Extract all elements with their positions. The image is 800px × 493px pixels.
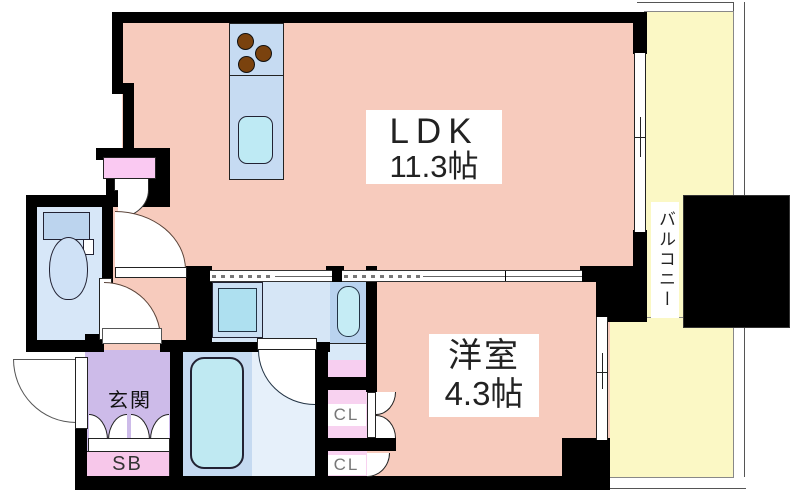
entrance-door-arc	[13, 359, 76, 423]
ldk-name: LDK	[366, 113, 502, 150]
closet-upper-door-panel	[367, 392, 376, 438]
western-room-name: 洋室	[429, 338, 539, 375]
western-room-window	[596, 317, 608, 440]
shoe-box-label: SB	[112, 453, 143, 476]
sliding-door	[423, 270, 582, 282]
ldk-label: LDK 11.3帖	[366, 110, 502, 184]
wall	[112, 12, 646, 23]
wall	[633, 230, 647, 272]
western-room-size: 4.3帖	[429, 375, 539, 412]
closet-upper-label: CL	[327, 404, 366, 426]
wall	[75, 476, 610, 490]
sliding-door-track	[275, 276, 332, 277]
stove-burner	[237, 33, 254, 50]
wall	[315, 350, 328, 477]
closet-upper: CL	[326, 390, 367, 438]
window-midline	[602, 353, 603, 389]
sliding-door-track	[423, 276, 582, 277]
wall	[123, 83, 134, 150]
stove-burner	[238, 56, 255, 73]
ldk-hall-door-leaf	[115, 267, 187, 278]
window-midline	[640, 117, 641, 157]
floor-plan: SB CL CL	[0, 0, 800, 493]
wall	[318, 438, 396, 451]
wall	[26, 195, 104, 207]
sliding-door	[275, 270, 332, 282]
building-mass	[683, 195, 790, 328]
wall	[102, 195, 113, 283]
dotted-line	[344, 275, 424, 278]
stove-burner	[255, 45, 272, 62]
alcove-shelf	[103, 157, 156, 179]
sliding-door-tick	[505, 271, 506, 281]
entrance-door-leaf	[75, 357, 88, 429]
toilet-tank	[43, 212, 90, 240]
closet-lower-label: CL	[327, 455, 366, 475]
entrance-step	[102, 328, 162, 344]
wall	[170, 342, 183, 489]
storage-cabinet-lower	[327, 360, 366, 377]
bathtub	[190, 357, 244, 469]
kitchen-counter-divider	[230, 75, 283, 76]
kitchen-counter	[229, 23, 284, 180]
balcony-lower	[607, 317, 734, 478]
wall	[75, 428, 87, 490]
wall	[596, 266, 647, 322]
closet-lower: CL	[326, 451, 367, 477]
ldk-size: 11.3帖	[366, 150, 502, 183]
bathroom-door-leaf	[257, 338, 317, 350]
wall	[26, 195, 37, 352]
balcony-label: バルコニー	[651, 202, 679, 318]
wall	[366, 266, 377, 392]
washing-machine	[218, 288, 257, 332]
shoe-box-door-panel	[88, 438, 170, 452]
toilet-bowl	[49, 237, 88, 300]
overhead-closet-line	[342, 270, 426, 282]
overhead-closet-line	[210, 270, 277, 282]
shoe-box: SB	[85, 451, 170, 477]
dotted-line	[212, 275, 275, 278]
balcony-outline-bottom	[607, 477, 746, 489]
storage-cabinet	[326, 343, 367, 378]
ldk-window	[634, 53, 646, 232]
entrance-label: 玄関	[98, 384, 162, 410]
wall	[112, 12, 123, 94]
kitchen-sink	[238, 116, 273, 164]
wall	[633, 12, 647, 54]
washbasin-sink	[337, 286, 360, 337]
wall	[183, 342, 259, 352]
western-room-label: 洋室 4.3帖	[429, 334, 539, 417]
